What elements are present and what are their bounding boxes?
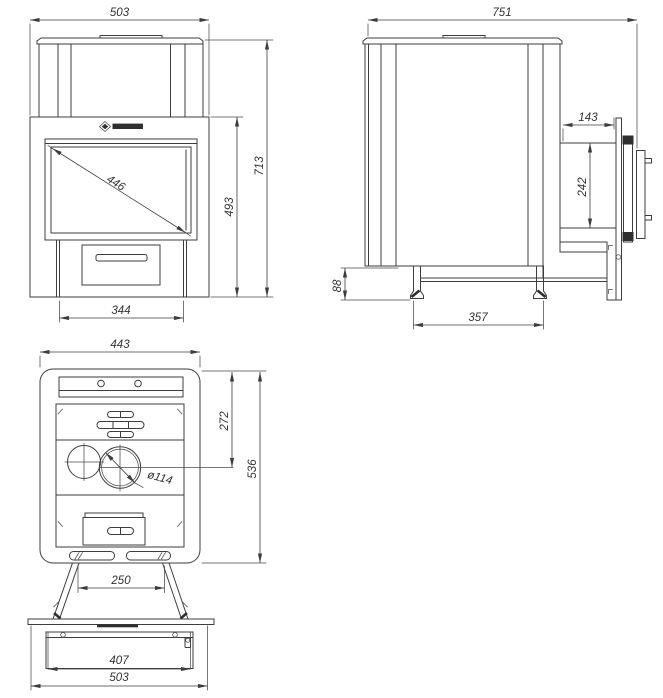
dim-glass-diagonal: 446 [104,173,127,194]
dim-rear-height: 536 [247,459,259,479]
mount-hole-left [98,380,105,387]
dim-body-height: 493 [224,197,236,217]
stove-dimension-drawing: 503 446 [0,0,663,698]
air-inlet-circle [65,444,104,481]
dim-leg-spacing-side: 357 [468,312,488,324]
dim-plinth-width: 344 [111,305,130,317]
logo-wordmark [113,124,144,129]
dim-total-height: 713 [254,156,266,176]
dim-leg-spacing-rear: 250 [110,575,131,587]
dim-flue-offset: 272 [219,411,231,432]
door-handle-side [637,151,646,239]
top-plate [37,38,203,44]
dim-base-inner-width: 407 [109,655,129,667]
base-screw-right [173,633,178,638]
right-column [185,44,203,117]
rear-view: 443 [28,339,266,690]
rear-top-strip [59,377,183,397]
dim-total-depth: 751 [492,7,511,19]
side-view: 751 [332,7,652,329]
dim-door-depth: 143 [578,112,598,124]
rear-column-side [365,44,381,266]
mount-hole-right [135,380,142,387]
bottom-slots [70,552,171,561]
legs-rear [53,563,188,619]
technical-drawing-canvas: 503 446 [0,0,663,698]
dim-front-top-width: 503 [110,7,130,19]
legs-side [411,266,608,299]
left-column [39,44,58,117]
dim-flue-diameter: ø114 [146,469,174,487]
door-assembly-side [607,118,652,300]
dim-base-width: 503 [109,672,129,684]
top-plate-side [363,38,562,44]
front-view: 503 446 [30,7,273,322]
dim-rear-width: 443 [110,339,130,351]
junction-box [83,513,145,545]
vent-slots [97,412,144,438]
dim-leg-height: 88 [332,279,344,292]
base-screw-left [61,633,66,638]
drawer-handle-slot [96,255,147,262]
dim-door-height: 242 [577,177,589,198]
stove-body-side [396,44,528,266]
ash-drawer [82,245,160,285]
brand-logo [100,122,144,132]
